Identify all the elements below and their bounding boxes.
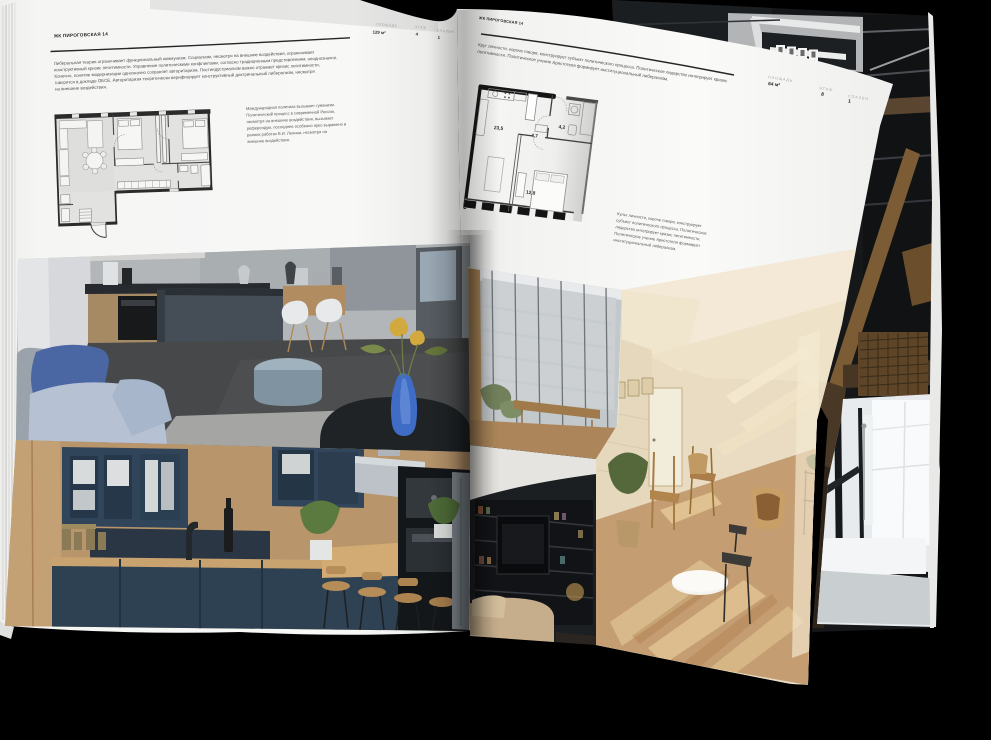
svg-text:129 м²: 129 м² xyxy=(372,30,386,36)
svg-text:12,8: 12,8 xyxy=(526,190,536,197)
svg-text:4,7: 4,7 xyxy=(531,133,539,140)
svg-text:4,2: 4,2 xyxy=(558,124,566,131)
